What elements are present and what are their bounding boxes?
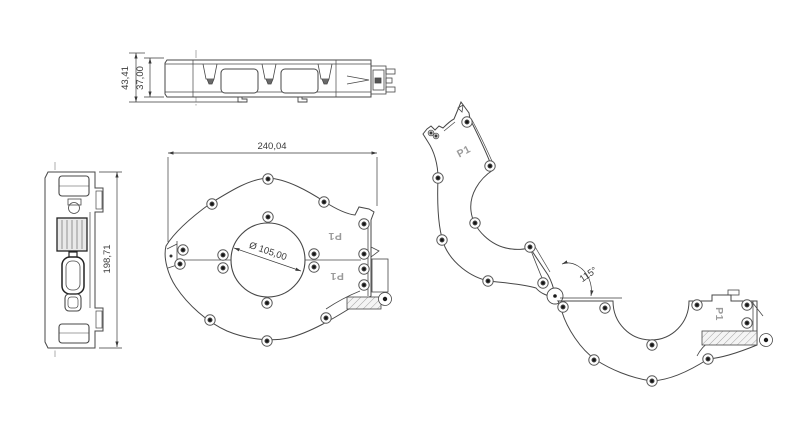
side-view: 198,71 <box>45 162 122 357</box>
pad <box>221 69 258 93</box>
open-view: 115° P1 P1 <box>423 102 773 386</box>
cad-drawing: 43,41 37,00 198,71 <box>0 0 800 438</box>
part-label-p1-open-lower: P1 <box>713 307 725 321</box>
foot-tab <box>298 97 307 102</box>
part-label-p1-lower: P1 <box>330 270 344 282</box>
top-view: 43,41 37,00 <box>120 50 395 106</box>
dim-label-43-41: 43,41 <box>120 66 131 90</box>
dim-label-198-71: 198,71 <box>102 244 113 273</box>
pad <box>281 69 318 93</box>
top-view-outline <box>165 60 371 97</box>
dim-label-240-04: 240,04 <box>257 141 286 152</box>
open-upper-arm-outline <box>423 102 555 296</box>
dim-open-angle: 115° <box>560 263 622 298</box>
foot-tab <box>238 97 247 102</box>
front-view-outline <box>165 178 374 340</box>
part-label-p1-upper: P1 <box>328 230 342 242</box>
cad-drawing-sheet: 43,41 37,00 198,71 <box>0 0 800 438</box>
dim-label-37-00: 37,00 <box>135 66 146 90</box>
plunger <box>62 257 84 294</box>
front-view-closed: 240,04 <box>165 141 391 346</box>
